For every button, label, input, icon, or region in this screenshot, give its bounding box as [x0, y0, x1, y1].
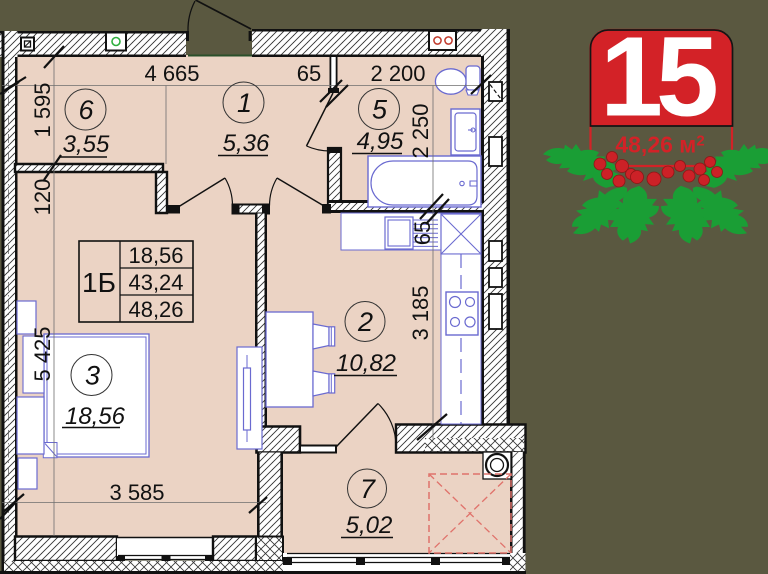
svg-text:3 585: 3 585 — [109, 480, 164, 505]
svg-text:6: 6 — [78, 95, 94, 125]
svg-text:1: 1 — [237, 88, 252, 118]
svg-text:2 250: 2 250 — [408, 103, 433, 158]
svg-text:5: 5 — [372, 95, 388, 125]
svg-text:65: 65 — [410, 221, 435, 245]
svg-text:48,26 м2: 48,26 м2 — [615, 132, 704, 158]
svg-text:10,82: 10,82 — [336, 350, 396, 377]
svg-text:3 185: 3 185 — [408, 285, 433, 340]
svg-text:2 200: 2 200 — [370, 61, 425, 86]
svg-text:65: 65 — [297, 61, 321, 86]
svg-text:5,36: 5,36 — [223, 130, 270, 157]
svg-text:48,26: 48,26 — [128, 297, 183, 322]
svg-text:18,56: 18,56 — [128, 243, 183, 268]
svg-text:120: 120 — [30, 179, 55, 216]
svg-text:4 665: 4 665 — [144, 61, 199, 86]
svg-text:3: 3 — [85, 361, 100, 391]
svg-text:3,55: 3,55 — [63, 131, 110, 158]
svg-text:1 595: 1 595 — [30, 82, 55, 137]
svg-text:43,24: 43,24 — [128, 270, 183, 295]
svg-text:5 425: 5 425 — [30, 326, 55, 381]
svg-text:15: 15 — [600, 14, 716, 140]
svg-text:18,56: 18,56 — [65, 403, 126, 430]
svg-text:4,95: 4,95 — [357, 128, 404, 155]
svg-text:7: 7 — [360, 474, 376, 504]
svg-text:1Б: 1Б — [82, 267, 116, 298]
svg-text:5,02: 5,02 — [346, 512, 393, 539]
svg-text:2: 2 — [357, 307, 373, 337]
